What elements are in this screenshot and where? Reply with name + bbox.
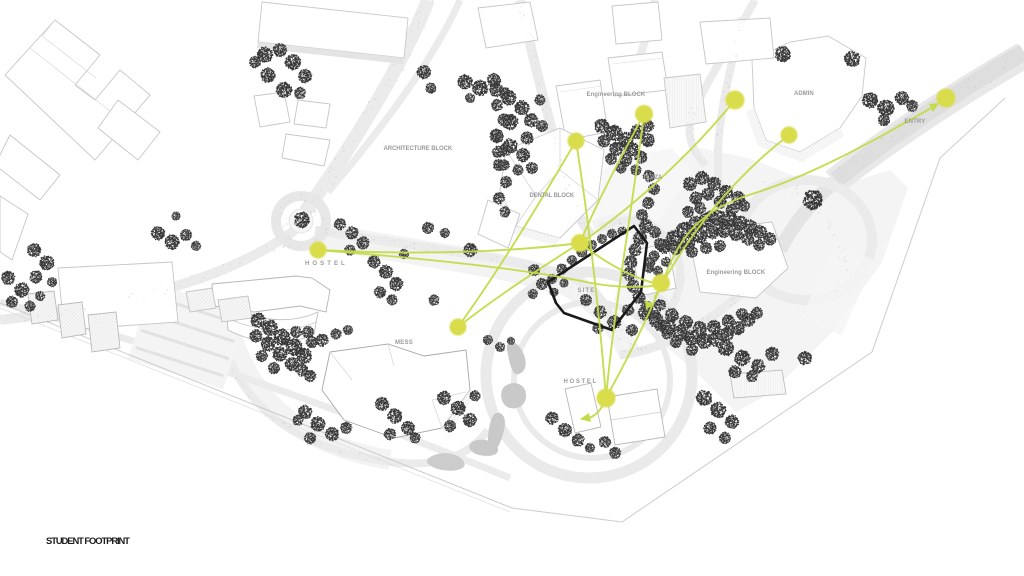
svg-text:HOSTEL: HOSTEL	[564, 379, 597, 385]
svg-text:SITE: SITE	[578, 288, 595, 294]
svg-text:DENTAL BLOCK: DENTAL BLOCK	[530, 193, 575, 199]
svg-text:ENTRY: ENTRY	[905, 119, 926, 125]
svg-text:STUDENT FOOTPRINT: STUDENT FOOTPRINT	[46, 535, 130, 546]
svg-text:ADMIN: ADMIN	[794, 91, 814, 97]
svg-text:Engineering BLOCK: Engineering BLOCK	[707, 270, 766, 276]
svg-text:PLAZA: PLAZA	[644, 175, 663, 181]
svg-text:ARCHITECTURE BLOCK: ARCHITECTURE BLOCK	[384, 146, 453, 152]
svg-text:MESS: MESS	[395, 340, 413, 346]
svg-text:Engineering BLOCK: Engineering BLOCK	[587, 92, 646, 98]
svg-text:HOSTEL: HOSTEL	[305, 261, 345, 267]
